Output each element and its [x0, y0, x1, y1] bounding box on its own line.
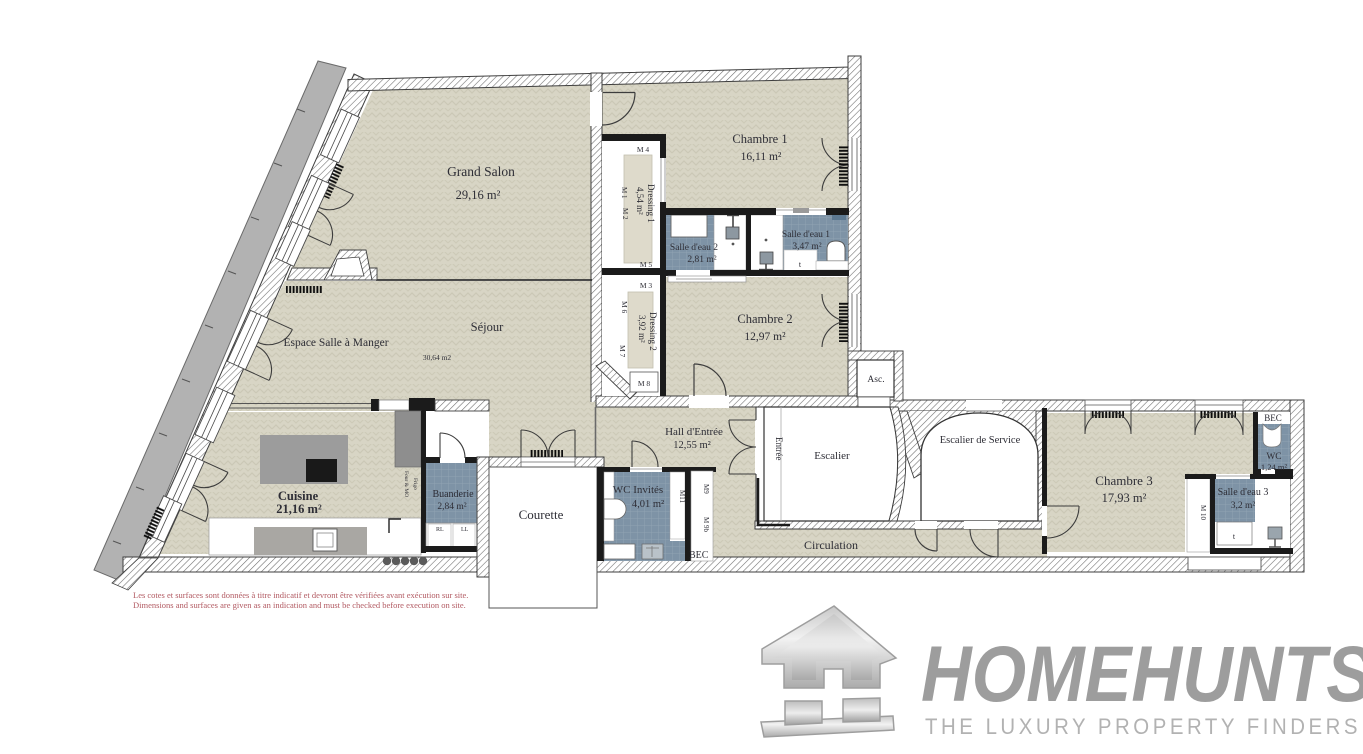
svg-text:2,84 m²: 2,84 m²	[437, 502, 466, 512]
svg-text:M 10: M 10	[1199, 505, 1207, 520]
svg-text:WC Invités: WC Invités	[613, 484, 663, 496]
svg-text:16,11 m²: 16,11 m²	[741, 151, 782, 163]
svg-text:Circulation: Circulation	[804, 538, 858, 552]
svg-text:M 4: M 4	[637, 145, 650, 154]
svg-text:M9: M9	[702, 484, 710, 494]
svg-text:Courette: Courette	[519, 507, 564, 522]
svg-text:3,47 m²: 3,47 m²	[792, 242, 821, 252]
svg-text:Chambre 1: Chambre 1	[732, 132, 787, 146]
svg-text:Séjour: Séjour	[471, 320, 504, 334]
svg-text:M 6: M 6	[620, 301, 629, 314]
svg-text:HOMEHUNTS: HOMEHUNTS	[921, 629, 1363, 718]
svg-text:Chambre 2: Chambre 2	[737, 312, 792, 326]
svg-text:12,55 m²: 12,55 m²	[673, 440, 711, 451]
svg-text:M 9b: M 9b	[702, 517, 710, 532]
svg-text:THE LUXURY PROPERTY FINDERS: THE LUXURY PROPERTY FINDERS	[925, 714, 1361, 739]
svg-text:Dressing 1: Dressing 1	[646, 184, 656, 223]
svg-text:29,16 m²: 29,16 m²	[456, 188, 501, 202]
svg-text:Hall d'Entrée: Hall d'Entrée	[665, 426, 723, 438]
svg-text:3,2 m²: 3,2 m²	[1231, 501, 1256, 511]
svg-text:M11: M11	[678, 490, 686, 503]
svg-text:Frigo: Frigo	[412, 478, 418, 490]
svg-text:Asc.: Asc.	[867, 375, 884, 385]
svg-text:Escalier: Escalier	[814, 450, 850, 462]
svg-text:21,16 m²: 21,16 m²	[276, 502, 322, 516]
svg-text:M 1: M 1	[620, 187, 628, 199]
svg-text:BEC: BEC	[689, 550, 709, 561]
svg-text:4,54 m²: 4,54 m²	[635, 187, 645, 215]
svg-text:Buanderie: Buanderie	[432, 489, 474, 500]
svg-text:M 2: M 2	[621, 208, 629, 220]
svg-text:LL: LL	[461, 527, 469, 533]
svg-text:Entrée: Entrée	[774, 437, 784, 460]
svg-text:12,97 m²: 12,97 m²	[744, 331, 786, 343]
svg-text:1,24 m²: 1,24 m²	[1261, 462, 1288, 472]
svg-text:BEC: BEC	[1264, 413, 1282, 423]
svg-text:M 7: M 7	[618, 345, 627, 358]
svg-text:3,92 m²: 3,92 m²	[637, 315, 647, 343]
svg-text:Dressing 2: Dressing 2	[648, 312, 658, 351]
svg-text:17,93 m²: 17,93 m²	[1102, 491, 1147, 505]
svg-text:Escalier de Service: Escalier de Service	[940, 435, 1021, 446]
svg-text:WC: WC	[1266, 452, 1281, 462]
svg-text:M 8: M 8	[638, 379, 651, 388]
svg-text:Espace Salle à Manger: Espace Salle à Manger	[283, 337, 388, 349]
svg-text:Chambre 3: Chambre 3	[1095, 473, 1152, 488]
svg-text:2,81 m²: 2,81 m²	[687, 255, 716, 265]
svg-text:30,64 m2: 30,64 m2	[423, 353, 452, 362]
svg-text:RL: RL	[436, 527, 444, 533]
svg-text:M 3: M 3	[640, 281, 653, 290]
svg-text:Grand Salon: Grand Salon	[447, 164, 515, 179]
svg-text:Salle d'eau 1: Salle d'eau 1	[782, 230, 830, 240]
svg-text:Cuisine: Cuisine	[278, 489, 319, 503]
svg-text:4,01 m²: 4,01 m²	[632, 499, 664, 510]
svg-text:Salle d'eau 2: Salle d'eau 2	[670, 243, 718, 253]
svg-text:Four & MO: Four & MO	[403, 471, 409, 497]
svg-text:M 5: M 5	[640, 260, 653, 269]
svg-text:Salle d'eau 3: Salle d'eau 3	[1218, 487, 1269, 498]
svg-text:Dimensions and surfaces are gi: Dimensions and surfaces are given as an …	[133, 600, 466, 610]
svg-text:Les cotes et surfaces sont don: Les cotes et surfaces sont données à tit…	[133, 590, 468, 600]
